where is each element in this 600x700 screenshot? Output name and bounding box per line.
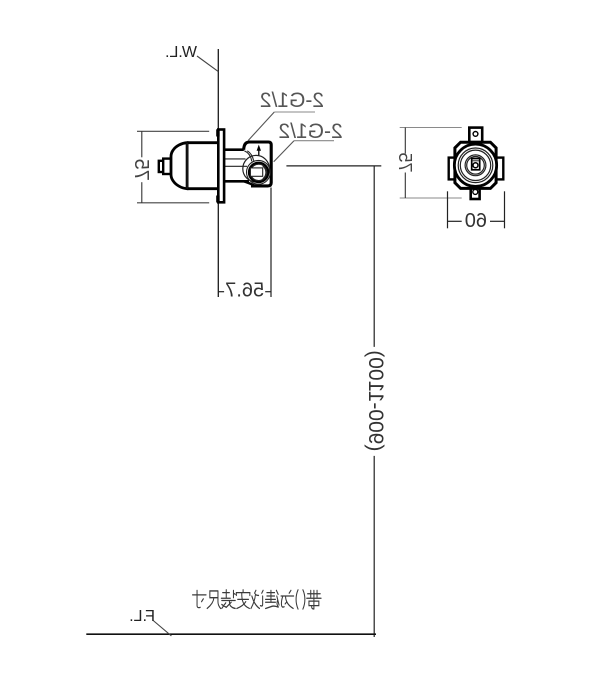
- svg-text:60: 60: [465, 210, 487, 232]
- svg-text:W.L.: W.L.: [165, 44, 197, 61]
- svg-text:75: 75: [395, 152, 415, 172]
- svg-text:2-G1/2: 2-G1/2: [260, 89, 324, 112]
- svg-text:75: 75: [130, 159, 152, 181]
- svg-text:2-G1/2: 2-G1/2: [278, 120, 342, 143]
- svg-text:56.7: 56.7: [225, 280, 264, 302]
- svg-text:(900-1100): (900-1100): [364, 350, 387, 451]
- svg-text:F.L.: F.L.: [129, 608, 155, 625]
